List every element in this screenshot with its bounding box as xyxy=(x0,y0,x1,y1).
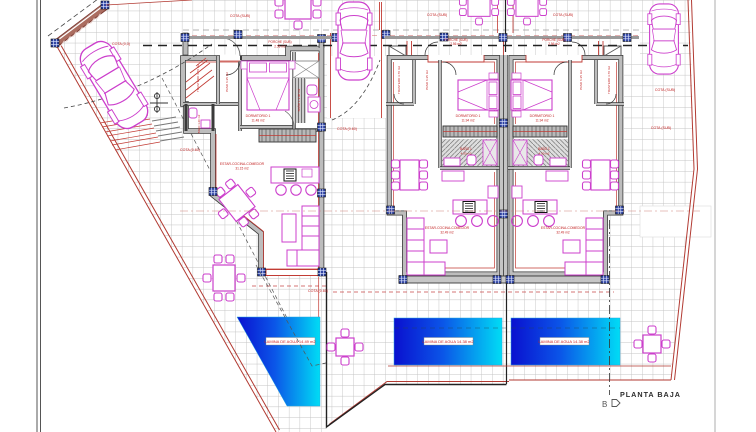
svg-text:COTA (SUB): COTA (SUB) xyxy=(427,13,447,17)
svg-text:11.94 m2: 11.94 m2 xyxy=(461,119,474,123)
svg-text:BAÑO 1: BAÑO 1 xyxy=(538,146,550,151)
svg-text:COTA (0.60): COTA (0.60) xyxy=(180,148,200,152)
svg-text:11.94 m2: 11.94 m2 xyxy=(535,119,548,123)
svg-text:4.50 m2: 4.50 m2 xyxy=(539,152,550,156)
svg-text:DORMITORIO 1: DORMITORIO 1 xyxy=(246,114,271,118)
svg-text:COTA (0.60): COTA (0.60) xyxy=(308,289,328,293)
svg-text:COTA (SUB): COTA (SUB) xyxy=(553,13,573,17)
svg-text:2.56 m2: 2.56 m2 xyxy=(450,42,462,46)
svg-text:LAMINA DE AGUA 14.38 m2: LAMINA DE AGUA 14.38 m2 xyxy=(538,339,590,344)
svg-text:PLANTA BAJA: PLANTA BAJA xyxy=(620,390,681,399)
svg-text:B: B xyxy=(602,400,607,409)
svg-text:PORCHE (SUB): PORCHE (SUB) xyxy=(268,40,291,44)
svg-text:DORMITORIO 1: DORMITORIO 1 xyxy=(530,114,555,118)
svg-text:COTA (SUB): COTA (SUB) xyxy=(655,88,675,92)
svg-text:COTA (0,0): COTA (0,0) xyxy=(112,42,130,46)
svg-text:ESTAR-COCINA-COMEDOR: ESTAR-COCINA-COMEDOR xyxy=(220,162,265,166)
svg-text:COTA (0.60): COTA (0.60) xyxy=(337,127,357,131)
svg-text:11.48 m2: 11.48 m2 xyxy=(251,119,264,123)
svg-text:ESTAR-COCINA-COMEDOR: ESTAR-COCINA-COMEDOR xyxy=(541,226,586,230)
svg-text:4.50 m2: 4.50 m2 xyxy=(461,152,472,156)
svg-text:PASO 6.35 m2: PASO 6.35 m2 xyxy=(225,72,229,92)
svg-text:PASO 6.35 m2: PASO 6.35 m2 xyxy=(579,70,583,90)
svg-text:ASEO 1.40 m2: ASEO 1.40 m2 xyxy=(197,114,201,133)
svg-text:COTA (SUB): COTA (SUB) xyxy=(651,126,671,130)
svg-text:32.49 m2: 32.49 m2 xyxy=(440,231,454,235)
svg-text:31.15 m2: 31.15 m2 xyxy=(235,167,249,171)
svg-text:PASO 6.35 m2: PASO 6.35 m2 xyxy=(425,70,429,90)
svg-text:ESTAR-COCINA-COMEDOR: ESTAR-COCINA-COMEDOR xyxy=(425,226,470,230)
svg-text:BAÑO 1: BAÑO 1 xyxy=(460,146,472,151)
svg-text:TRASTERO 3.70 m2: TRASTERO 3.70 m2 xyxy=(607,66,611,94)
svg-text:LAMINA DE AGUA 14.49 m2: LAMINA DE AGUA 14.49 m2 xyxy=(264,339,316,344)
svg-text:2.56 m2: 2.56 m2 xyxy=(274,45,286,49)
svg-text:BAÑO 1 3.90 m2: BAÑO 1 3.90 m2 xyxy=(296,88,301,111)
svg-text:TRASTERO 3.70 m2: TRASTERO 3.70 m2 xyxy=(397,66,401,94)
svg-text:2.56 m2: 2.56 m2 xyxy=(548,42,560,46)
svg-text:TRASTERO 3.70 m2: TRASTERO 3.70 m2 xyxy=(196,64,200,92)
svg-text:COTA (SUB): COTA (SUB) xyxy=(230,14,250,18)
svg-text:LAMINA DE AGUA 14.38 m2: LAMINA DE AGUA 14.38 m2 xyxy=(422,339,474,344)
svg-text:DORMITORIO 1: DORMITORIO 1 xyxy=(456,114,481,118)
svg-text:32.49 m2: 32.49 m2 xyxy=(556,231,570,235)
